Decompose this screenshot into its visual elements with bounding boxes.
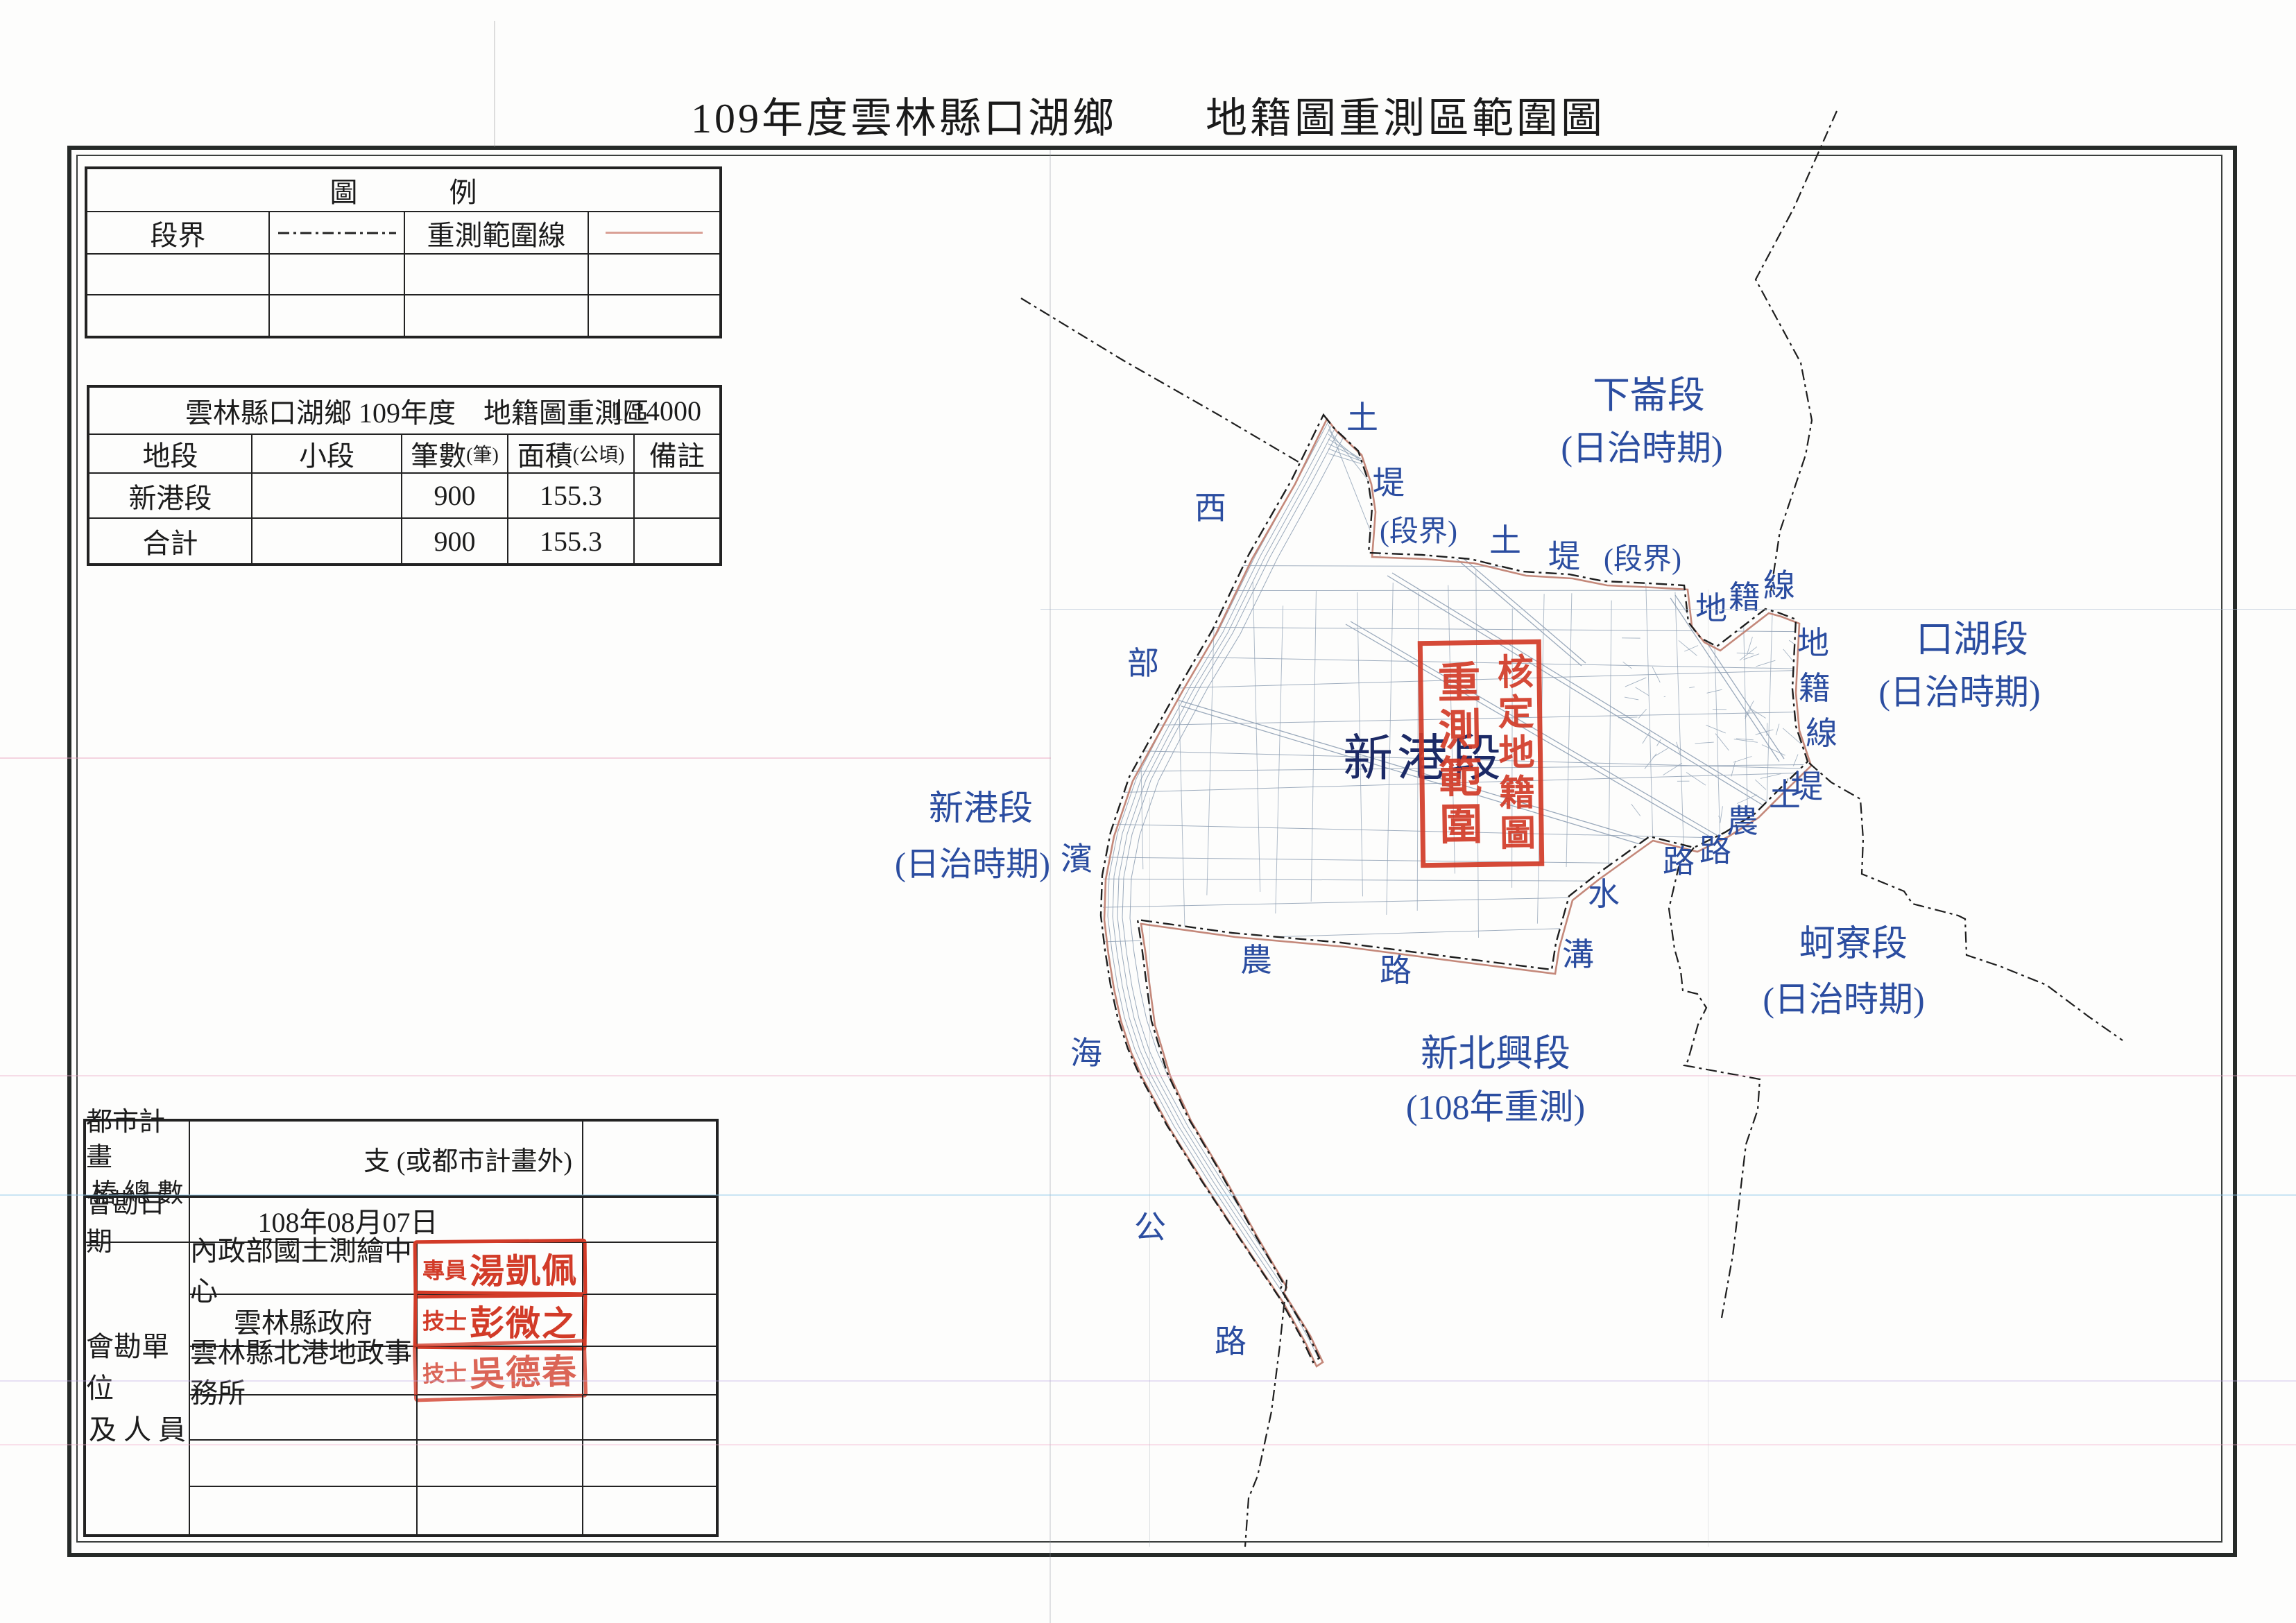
label-earth-dike-3b: 堤: [1791, 769, 1823, 805]
label-road-hai: 海: [1070, 1036, 1102, 1071]
label-cadline-2c: 線: [1806, 716, 1837, 751]
region-xinbeixing-era: (108年重測): [1406, 1088, 1585, 1126]
label-ditch-b: 溝: [1562, 937, 1594, 972]
label-cadline-2a: 地: [1797, 626, 1829, 661]
label-section-bound-2: (段界): [1604, 544, 1681, 576]
region-heliao: 蚵寮段: [1799, 925, 1908, 964]
region-xingang: 新港段: [929, 789, 1033, 827]
label-farm-road-rc: 路: [1663, 844, 1695, 879]
region-xialun-era: (日治時期): [1561, 429, 1722, 467]
scanned-document-page: 109年度雲林縣口湖鄉 地籍圖重測區範圍圖 圖 例 段界 重測範圍線 雲林縣口湖…: [0, 0, 2296, 1623]
region-kouhu-era: (日治時期): [1878, 673, 2040, 712]
section-boundary-lines: [1021, 111, 2123, 1547]
label-road-gong: 公: [1134, 1210, 1166, 1245]
resurvey-range-line: [1104, 419, 1811, 1366]
label-cadline-1b: 籍: [1729, 580, 1760, 615]
approval-stamp: 核定地籍圖 重測範圍: [1418, 639, 1545, 868]
label-road-bu: 部: [1127, 646, 1159, 681]
label-farm-road-bb: 路: [1380, 953, 1412, 988]
boundary-se-south: [1669, 848, 1760, 1318]
label-road-bin: 濱: [1061, 841, 1093, 877]
cadastral-map: 下崙段 (日治時期) 口湖段 (日治時期) 新港段 (日治時期) 蚵寮段 (日治…: [0, 0, 2296, 1623]
feature-labels: 土 堤 (段界) 土 堤 (段界) 地 籍 線 地 籍 線 土 堤 農 路 路 …: [1061, 400, 1837, 1359]
label-earth-dike-1a: 土: [1346, 400, 1378, 436]
approval-stamp-left-text: 重測範圍: [1423, 659, 1488, 848]
label-farm-road-rb: 路: [1699, 833, 1731, 868]
approval-stamp-right-text: 核定地籍圖: [1485, 652, 1540, 854]
label-section-bound-1: (段界): [1380, 516, 1457, 548]
label-cadline-1a: 地: [1695, 591, 1727, 626]
label-farm-road-ba: 農: [1240, 943, 1272, 978]
label-road-xi: 西: [1194, 490, 1226, 526]
region-kouhu: 口湖段: [1916, 619, 2028, 660]
label-earth-dike-1b: 堤: [1373, 465, 1405, 501]
region-xialun: 下崙段: [1593, 375, 1705, 416]
boundary-nw: [1021, 298, 1299, 462]
label-ditch-a: 水: [1588, 877, 1620, 912]
label-cadline-2b: 籍: [1799, 671, 1831, 706]
region-heliao-era: (日治時期): [1763, 980, 1924, 1019]
boundary-south-tail: [1245, 1280, 1287, 1547]
label-earth-dike-2b: 堤: [1548, 539, 1580, 574]
label-cadline-1c: 線: [1763, 568, 1795, 603]
region-xinbeixing: 新北興段: [1421, 1033, 1570, 1074]
region-xingang-era: (日治時期): [895, 846, 1050, 883]
boundary-ne: [1756, 111, 1837, 591]
label-earth-dike-2a: 土: [1489, 523, 1521, 558]
label-road-lu: 路: [1215, 1324, 1246, 1359]
